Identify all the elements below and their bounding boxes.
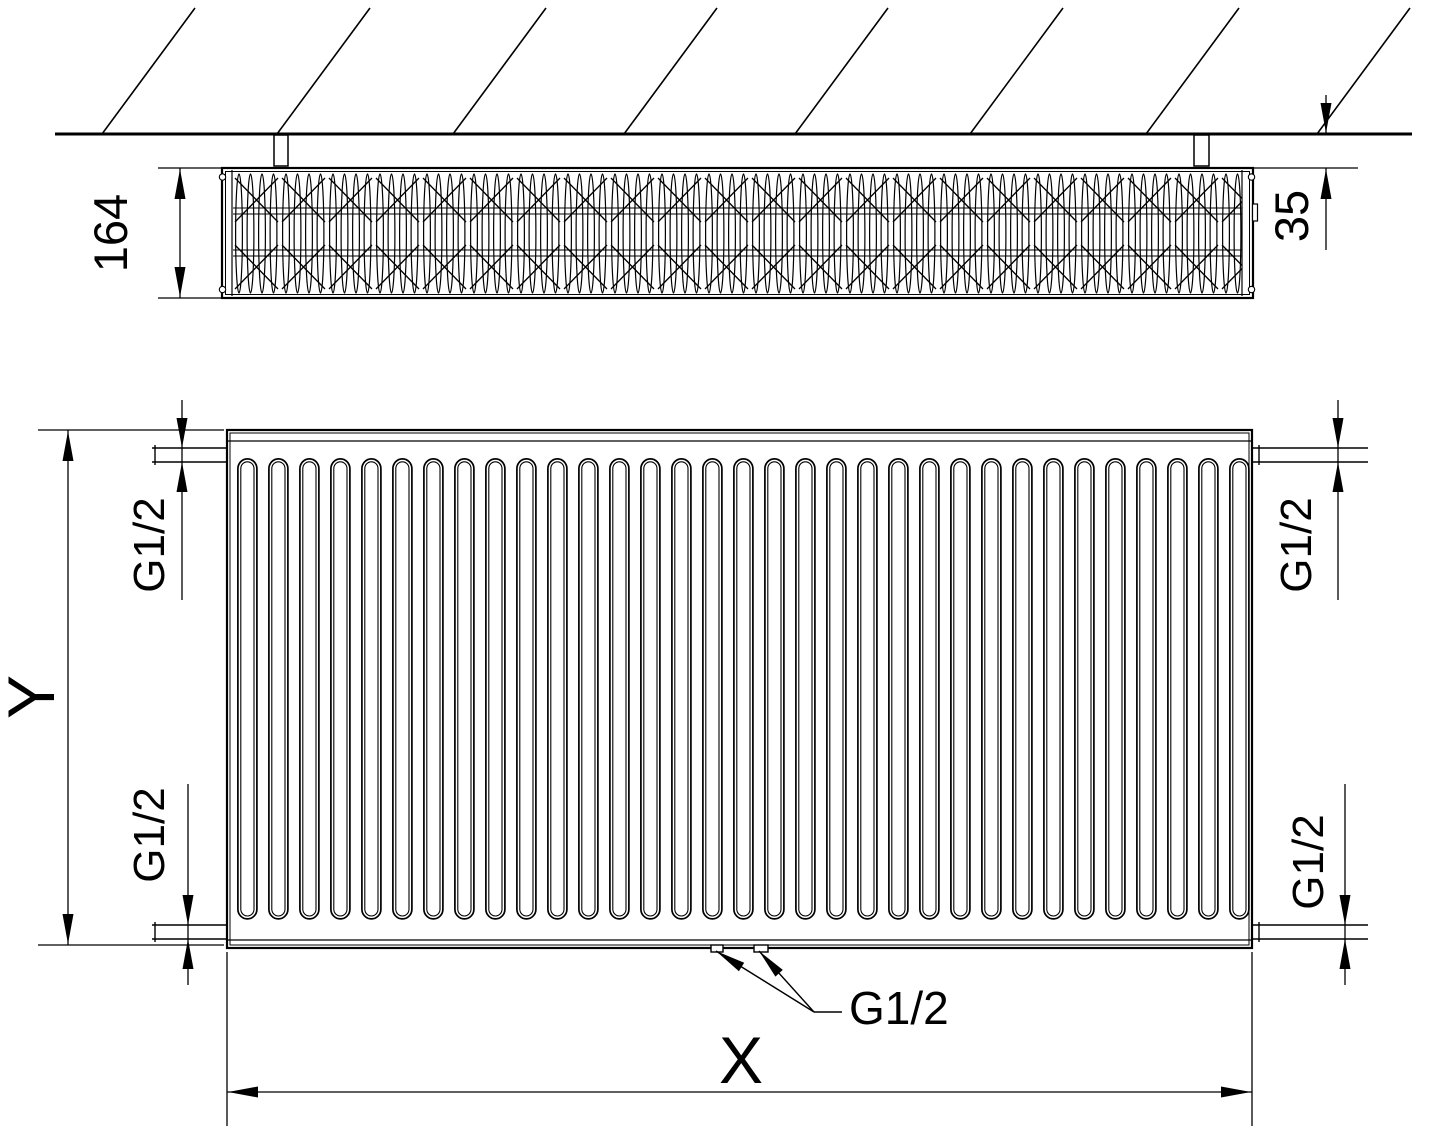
dim-arrow [63,914,74,944]
connection-bottom-center: G1/2 [716,951,949,1034]
screw [219,286,225,292]
fin-area [233,172,1242,295]
hatch-line [1317,8,1410,134]
connection-label: G1/2 [125,787,174,882]
dim-arrow [1333,462,1344,492]
dim-arrow [1321,103,1332,133]
hatch-line [277,8,370,134]
wall-section [55,8,1412,134]
dim-wall-distance: 35 [1253,95,1358,250]
top-view [219,168,1257,298]
front-view [227,430,1252,952]
connection-label: G1/2 [849,982,949,1034]
depth-label: 164 [84,194,137,272]
dim-arrow [175,169,186,199]
dim-arrow [1340,939,1351,969]
connection-label: G1/2 [1272,497,1321,592]
hatch-line [970,8,1063,134]
hatch-line [1146,8,1239,134]
dim-arrow [1340,895,1351,925]
dim-depth: 164 [84,168,222,298]
channel-field [237,458,1250,920]
drawing-page: 164 35 Y X [0,0,1429,1131]
hatch-line [102,8,195,134]
dim-arrow [228,1087,258,1098]
hatch-line [624,8,717,134]
connection-bottom-left: G1/2 [125,784,227,985]
dim-width: X [227,952,1252,1126]
dim-arrow [183,939,194,969]
dim-arrow [63,431,74,461]
dim-arrow [177,462,188,492]
screw [219,174,225,180]
connection-label: G1/2 [125,497,174,592]
dim-arrow [1321,169,1332,199]
dim-height: Y [0,430,224,945]
screw [1248,174,1254,180]
hatch-line [453,8,546,134]
connection-top-right: G1/2 [1252,400,1368,600]
dim-arrow [1333,418,1344,448]
wall-distance-label: 35 [1265,190,1318,242]
dim-arrow [175,267,186,297]
dim-arrow [183,895,194,925]
dim-arrow [1221,1087,1251,1098]
leader-arrow [716,951,744,971]
leader-arrow [759,951,783,977]
wall-brackets [274,135,1209,166]
bracket-left [274,135,288,166]
vent-tab [1253,204,1258,221]
dim-arrow [177,418,188,448]
screw [1248,286,1254,292]
connection-label: G1/2 [1284,814,1333,909]
drawing-canvas: 164 35 Y X [0,0,1429,1131]
width-label: X [719,1023,763,1097]
connection-tab [754,945,768,952]
hatch-line [795,8,888,134]
connection-bottom-right: G1/2 [1252,784,1368,985]
bracket-right [1194,135,1209,166]
height-label: Y [0,675,68,719]
